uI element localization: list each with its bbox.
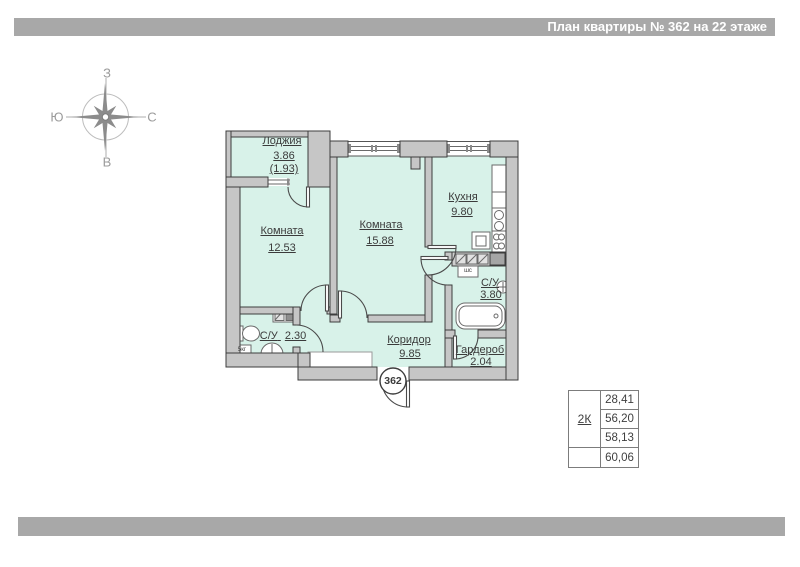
- area-value-cell: 56,20: [601, 410, 638, 429]
- room-area-wardrobe: 2.04: [470, 356, 491, 368]
- room-label-room2: Комната: [359, 219, 402, 231]
- kitchen-vent-shaft: [452, 252, 506, 266]
- unit-number-label: 362: [384, 375, 402, 387]
- window-kitchen-icon: [447, 141, 490, 156]
- kitchen-sink-icon: [495, 211, 504, 220]
- room-label-wc: С/У 2.30: [260, 330, 306, 342]
- room-area-loggia-reduced: (1.93): [270, 163, 299, 175]
- room-label-loggia: Лоджия: [263, 135, 302, 147]
- room-label-bathroom: С/У: [481, 277, 499, 289]
- duct-label: шс: [464, 268, 472, 274]
- room-area-room2: 15.88: [366, 235, 394, 247]
- room-area-corridor: 9.85: [399, 348, 420, 360]
- area-summary-table: 2К 28,41 56,20 58,13 60,06: [568, 390, 639, 468]
- room-label-room1: Комната: [260, 225, 303, 237]
- compass-south-label: Ю: [50, 110, 63, 125]
- corridor-closet: [308, 352, 372, 368]
- apartment-type-cell: 2К: [569, 391, 601, 448]
- compass-rose-icon: [66, 78, 146, 157]
- compass-north-label: С: [147, 110, 156, 125]
- area-value-cell: 60,06: [601, 448, 638, 467]
- compass-west-label: З: [103, 66, 111, 81]
- room-label-wardrobe: Гардероб: [456, 344, 504, 356]
- room-area-room1: 12.53: [268, 242, 296, 254]
- washer-capacity-label: 5кг: [238, 347, 246, 353]
- compass-east-label: В: [103, 155, 112, 170]
- room-area-wc: 2.30: [285, 330, 306, 342]
- area-value-cell: 28,41: [601, 391, 638, 410]
- room-label-corridor: Коридор: [387, 334, 430, 346]
- area-value-cell: 58,13: [601, 429, 638, 448]
- room-label-kitchen: Кухня: [448, 191, 477, 203]
- stove-icon: [492, 231, 506, 252]
- empty-cell: [569, 448, 601, 467]
- room-label-wc-name: С/У: [260, 330, 278, 342]
- room-area-loggia: 3.86: [273, 150, 294, 162]
- room-area-bathroom: 3.80: [480, 289, 501, 301]
- window-room2-icon: [348, 141, 400, 156]
- bathtub-icon: [456, 303, 505, 329]
- window-loggia-icon: [266, 178, 290, 186]
- room-area-kitchen: 9.80: [451, 206, 472, 218]
- floor-plan-svg: [0, 0, 800, 567]
